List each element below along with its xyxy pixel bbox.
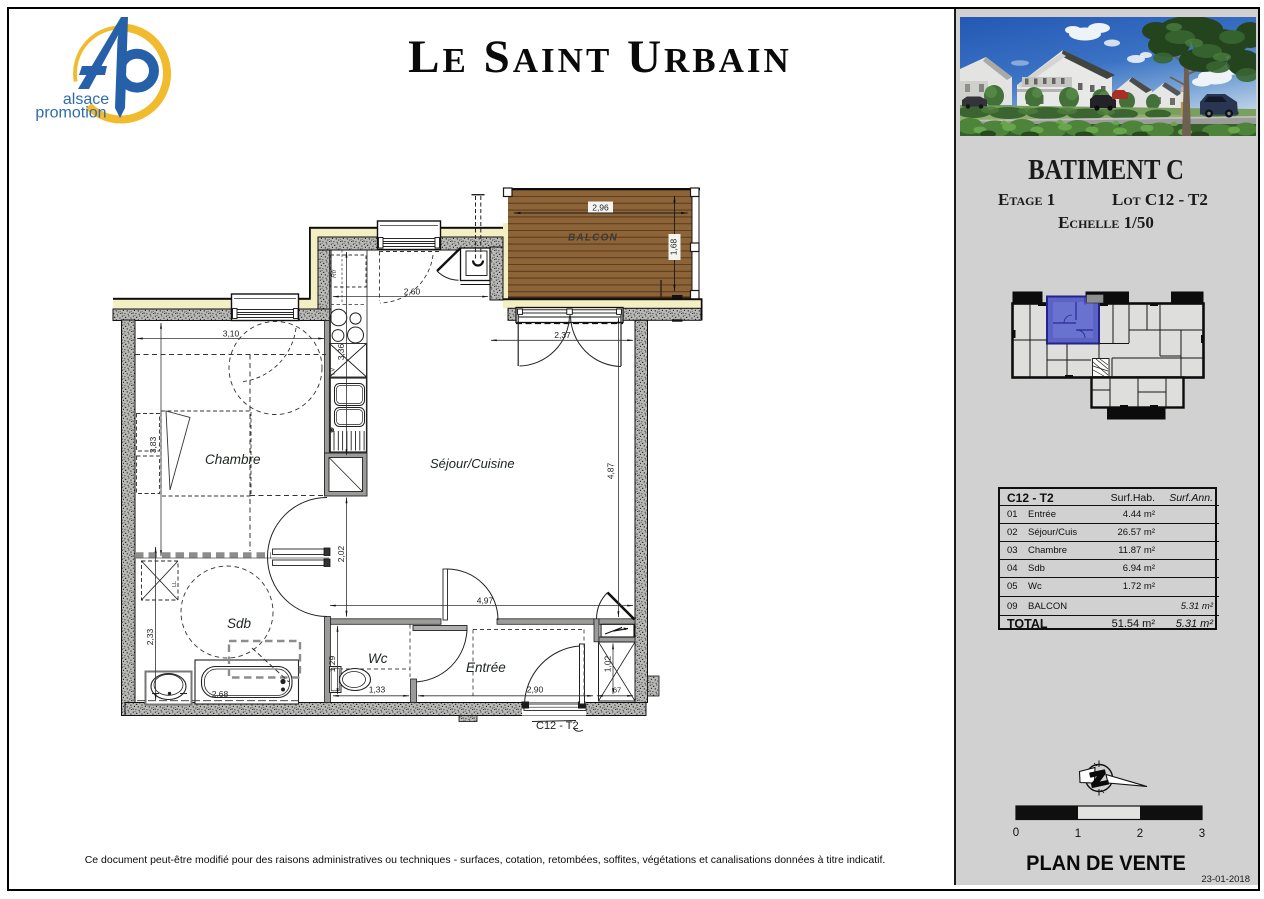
svg-text:1,29: 1,29 xyxy=(327,655,337,672)
svg-text:Chambre: Chambre xyxy=(205,452,261,467)
svg-text:3,83: 3,83 xyxy=(148,436,158,453)
svg-text:2,68: 2,68 xyxy=(212,689,229,699)
svg-text:4,97: 4,97 xyxy=(477,596,494,606)
svg-text:3,36: 3,36 xyxy=(336,343,346,360)
svg-text:2,96: 2,96 xyxy=(592,203,609,213)
svg-text:LL: LL xyxy=(172,581,178,587)
svg-text:3: 3 xyxy=(1199,828,1205,840)
svg-text:0: 0 xyxy=(1013,827,1019,839)
svg-text:2,90: 2,90 xyxy=(527,685,544,695)
svg-text:1,33: 1,33 xyxy=(369,685,386,695)
svg-text:3,10: 3,10 xyxy=(223,329,240,339)
svg-text:Rfr: Rfr xyxy=(331,269,338,279)
svg-text:Entrée: Entrée xyxy=(466,660,506,675)
svg-text:Sdb: Sdb xyxy=(227,616,252,631)
svg-text:1,68: 1,68 xyxy=(669,238,679,255)
svg-text:67: 67 xyxy=(613,686,621,695)
svg-text:2: 2 xyxy=(1137,828,1143,840)
svg-text:LV: LV xyxy=(330,367,337,375)
svg-text:BALCON: BALCON xyxy=(568,233,618,244)
svg-text:1: 1 xyxy=(1075,828,1081,840)
svg-text:2,60: 2,60 xyxy=(404,287,421,297)
svg-text:Wc: Wc xyxy=(368,651,388,666)
svg-text:2,02: 2,02 xyxy=(336,545,346,562)
svg-text:2,33: 2,33 xyxy=(145,628,155,645)
svg-text:4,87: 4,87 xyxy=(606,462,616,479)
svg-text:Séjour/Cuisine: Séjour/Cuisine xyxy=(430,456,515,471)
svg-text:1,02: 1,02 xyxy=(603,655,613,672)
svg-text:C12 - T2: C12 - T2 xyxy=(536,720,579,732)
svg-text:2,37: 2,37 xyxy=(554,330,571,340)
